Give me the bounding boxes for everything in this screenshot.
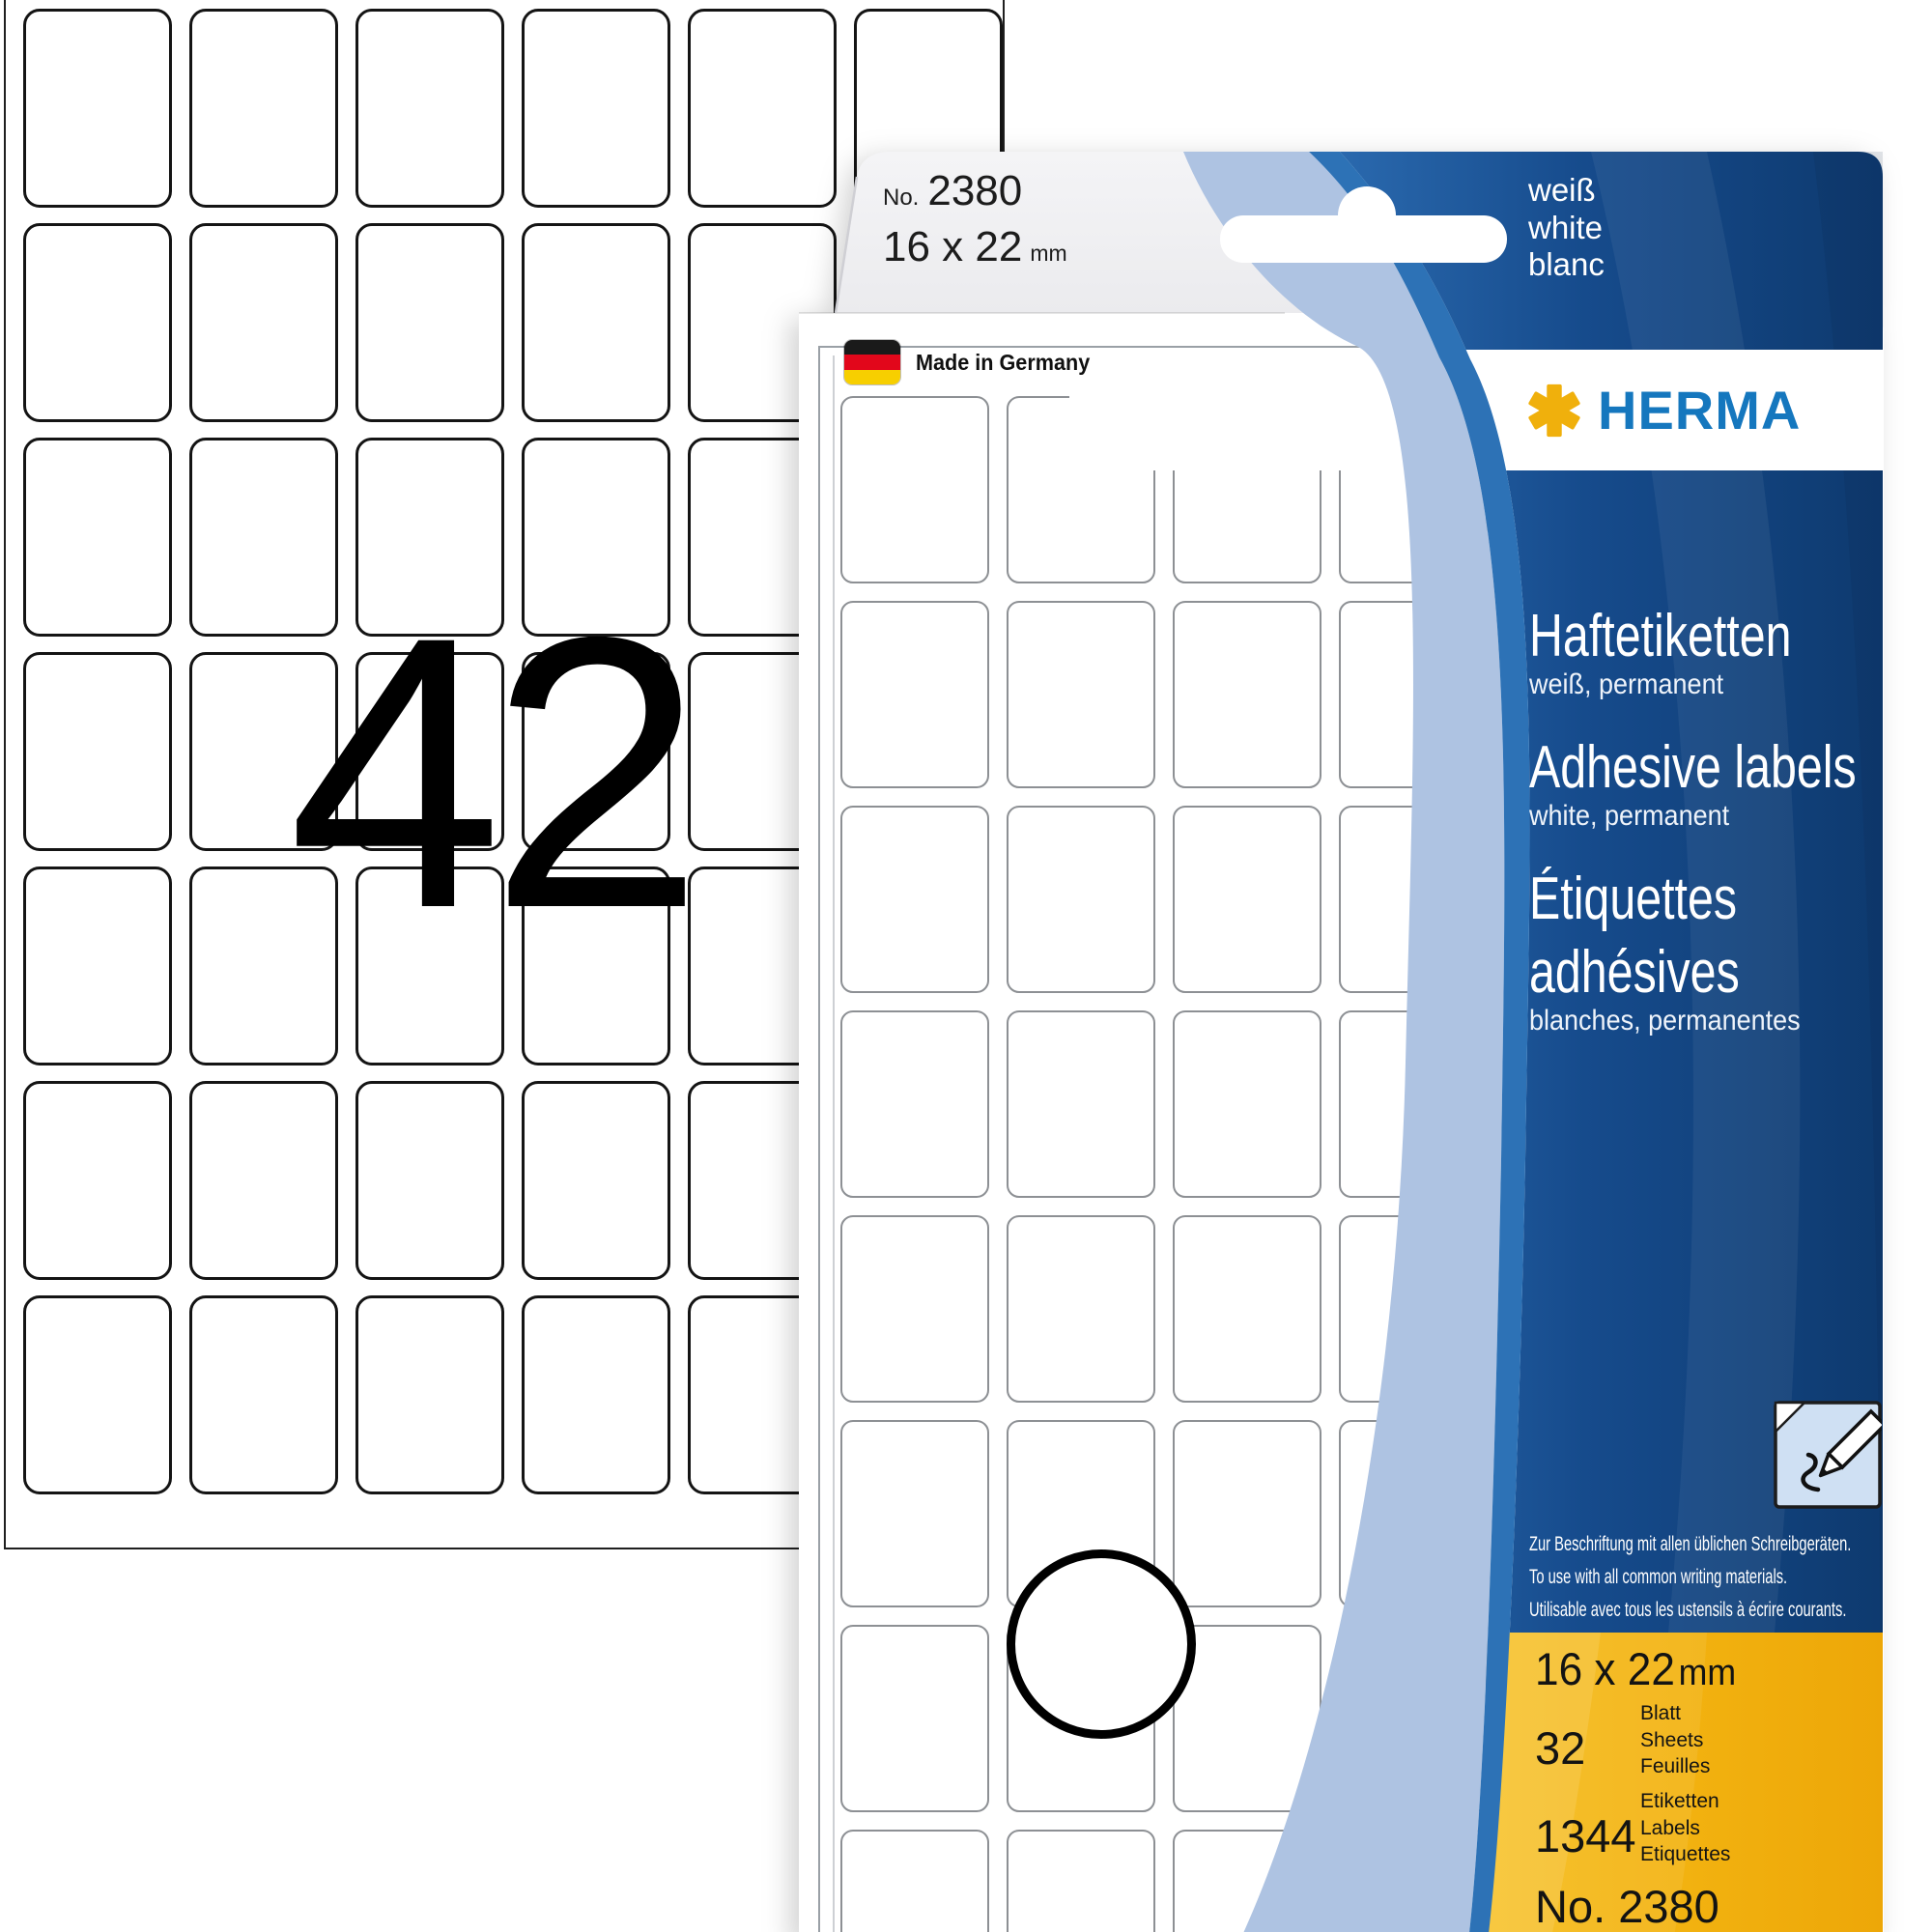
subtitle-en: white, permanent — [1529, 800, 1751, 833]
usage-fr: Utilisable avec tous les ustensils à écr… — [1529, 1594, 1846, 1627]
label-cell — [1339, 1215, 1488, 1403]
label-cell — [355, 9, 504, 208]
label-count-overlay: 42 — [288, 580, 691, 966]
label-cell — [1007, 806, 1155, 993]
label-cell — [840, 1010, 989, 1198]
label-cell — [522, 1081, 670, 1280]
brand-wordmark: HERMA — [1598, 379, 1801, 441]
subtitle-fr: blanches, permanentes — [1529, 1005, 1831, 1037]
label-cell — [189, 1081, 338, 1280]
label-cell — [23, 1295, 172, 1494]
label-cell — [1007, 396, 1155, 583]
package-window — [818, 346, 1494, 1932]
usage-de: Zur Beschriftung mit allen üblichen Schr… — [1529, 1528, 1851, 1561]
made-in-germany: Made in Germany — [844, 340, 1101, 384]
usage-en: To use with all common writing materials… — [1529, 1561, 1787, 1594]
label-cell — [1173, 1830, 1321, 1932]
label-cell — [23, 1081, 172, 1280]
color-fr: blanc — [1528, 246, 1605, 284]
spec-labels-value: 1344 — [1535, 1809, 1636, 1862]
spec-size-unit: mm — [1679, 1653, 1737, 1693]
title-en: Adhesive labels — [1529, 738, 1932, 798]
label-cell — [1007, 1830, 1155, 1932]
label-cell — [189, 9, 338, 208]
label-cell — [1339, 1420, 1488, 1607]
label-cell — [23, 223, 172, 422]
label-cell — [1007, 1215, 1155, 1403]
tab-no-prefix: No. — [883, 185, 919, 212]
label-cell — [355, 1081, 504, 1280]
writing-tools-icon — [1774, 1401, 1882, 1509]
subtitle-de: weiß, permanent — [1529, 668, 1745, 701]
label-cell — [1339, 1010, 1488, 1198]
inner-sheet-edge — [833, 355, 835, 1932]
title-de: Haftetiketten — [1529, 607, 1865, 667]
label-cell — [1173, 1215, 1321, 1403]
label-cell — [1339, 806, 1488, 993]
label-cell — [522, 223, 670, 422]
label-cell — [1173, 1420, 1321, 1607]
label-cell — [840, 1625, 989, 1812]
label-cell — [23, 438, 172, 637]
label-cell — [1339, 1625, 1488, 1812]
title-fr-line1: Étiquettes — [1529, 869, 1796, 929]
color-de: weiß — [1528, 172, 1605, 210]
label-cell — [840, 396, 989, 583]
tab-text-block: No. 2380 16 x 22 mm — [883, 167, 1067, 279]
label-cell — [840, 1830, 989, 1932]
tab-size: 16 x 22 — [883, 223, 1022, 271]
label-cell — [23, 867, 172, 1065]
label-cell — [1173, 396, 1321, 583]
spec-sheets-units: Blatt Sheets Feuilles — [1640, 1700, 1710, 1780]
label-cell — [840, 806, 989, 993]
usage-note: Zur Beschriftung mit allen üblichen Schr… — [1529, 1528, 1932, 1627]
label-cell — [1339, 396, 1488, 583]
german-flag-icon — [844, 340, 900, 384]
label-cell — [23, 9, 172, 208]
spec-order-no: No. 2380 — [1535, 1880, 1719, 1932]
window-edge-left — [818, 346, 820, 1932]
herma-asterisk-icon — [1526, 383, 1582, 439]
label-cell — [522, 1295, 670, 1494]
label-cell — [1339, 601, 1488, 788]
spec-sheets-value: 32 — [1535, 1721, 1585, 1775]
label-cell — [840, 1420, 989, 1607]
brand-logo: HERMA — [1526, 379, 1801, 441]
label-cell — [1339, 1830, 1488, 1932]
label-cell — [23, 652, 172, 851]
label-cell — [1173, 601, 1321, 788]
label-cell — [1007, 1010, 1155, 1198]
color-lang-block: weiß white blanc — [1528, 172, 1605, 284]
title-fr-line2: adhésives — [1529, 943, 1799, 1003]
label-cell — [1173, 806, 1321, 993]
label-cell — [189, 223, 338, 422]
spec-size: 16 x 22 mm — [1535, 1642, 1748, 1695]
label-cell — [355, 223, 504, 422]
label-cell — [355, 1295, 504, 1494]
label-cell — [1007, 601, 1155, 788]
label-cell — [840, 601, 989, 788]
spec-labels-units: Etiketten Labels Etiquettes — [1640, 1788, 1730, 1868]
tab-size-unit: mm — [1030, 241, 1066, 267]
label-cell — [522, 9, 670, 208]
color-en: white — [1528, 210, 1605, 247]
made-in-label: Made in Germany — [916, 350, 1090, 376]
label-cell — [1173, 1010, 1321, 1198]
label-cell — [189, 1295, 338, 1494]
label-cell — [840, 1215, 989, 1403]
tab-no-value: 2380 — [927, 167, 1022, 215]
die-cut-circle — [1007, 1549, 1196, 1739]
product-image: 42 — [0, 0, 1932, 1932]
